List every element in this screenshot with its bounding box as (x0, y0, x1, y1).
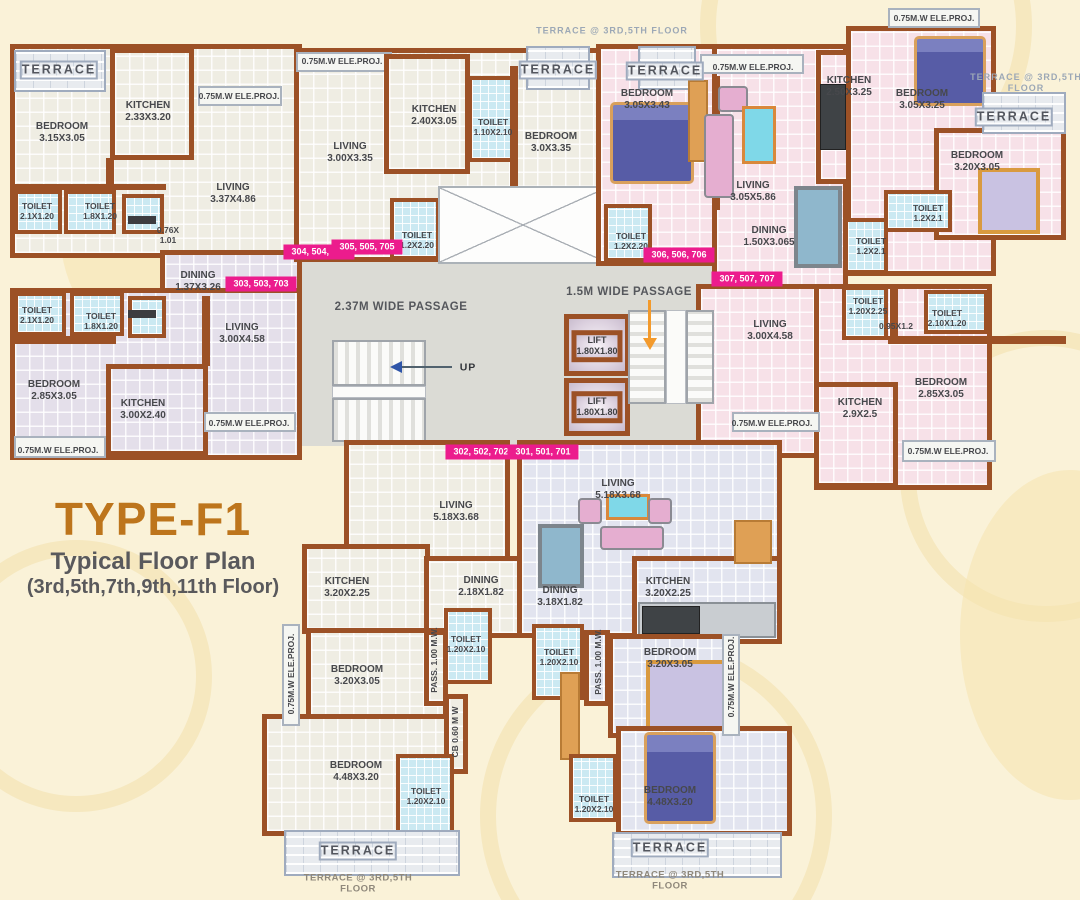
wall-303-a (12, 336, 116, 344)
room-label: TOILET1.8X1.20 (83, 201, 117, 221)
room-label: 0.75M.W ELE.PROJ. (286, 634, 296, 715)
room-label: BEDROOM2.85X3.05 (28, 379, 80, 403)
wardrobe-301 (560, 672, 580, 760)
table-301 (538, 524, 584, 588)
stairs-landing-1 (332, 386, 426, 398)
up-label: UP (460, 362, 477, 375)
floor-note: TERRACE @ 3RD,5THFLOOR (616, 870, 725, 893)
stove-301 (642, 606, 700, 634)
terrace-label: TERRACE (631, 839, 709, 858)
plan-subtitle: Typical Floor Plan (18, 548, 288, 576)
room-label: 0.75M.W ELE.PROJ. (732, 418, 813, 428)
room-label: 0.95X1.2 (879, 321, 913, 331)
room-label: 0.75M.W ELE.PROJ. (713, 62, 794, 72)
room-label: 0.75M.W ELE.PROJ. (726, 637, 736, 718)
stairs-dn-b (686, 310, 714, 404)
plan-floors-note: (3rd,5th,7th,9th,11th Floor) (18, 576, 288, 599)
table-306 (794, 186, 842, 268)
unit-badge: 301, 501, 701 (507, 445, 578, 460)
room-label: DINING3.18X1.82 (537, 585, 583, 609)
room-label: KITCHEN3.20X2.25 (324, 576, 370, 600)
lift-label: LIFT1.80X1.80 (571, 391, 622, 423)
bed-307-b (978, 168, 1040, 234)
terrace-label: TERRACE (626, 62, 704, 81)
room-label: LIVING5.18X3.68 (595, 478, 641, 502)
stairs-up-b (332, 398, 426, 442)
bed-306 (610, 102, 694, 184)
floor-note: TERRACE @ 3RD,5THFLOOR (970, 72, 1080, 94)
terrace-label: TERRACE (20, 61, 98, 80)
unit-badge: 307, 507, 707 (711, 272, 782, 287)
sofa-301 (600, 526, 664, 550)
room-label: BEDROOM3.20X3.05 (331, 664, 383, 688)
room-label: TOILET2.1X1.20 (20, 201, 54, 221)
terrace-label: TERRACE (319, 842, 397, 861)
chair-301-b (648, 498, 672, 524)
room-label: TOILET1.8X1.20 (84, 311, 118, 331)
room-label: LIVING3.05X5.86 (730, 180, 776, 204)
dim-smudge (128, 310, 156, 318)
room-label: BEDROOM3.0X3.35 (525, 131, 577, 155)
room-label: 0.76X1.01 (157, 225, 179, 245)
room-label: TOILET1.20X2.10 (447, 634, 486, 654)
room-label: TOILET1.10X2.10 (474, 117, 513, 137)
room-label: BEDROOM3.15X3.05 (36, 121, 88, 145)
room-label: DINING1.37X3.26 (175, 270, 221, 294)
lift-label: LIFT1.80X1.80 (571, 330, 622, 362)
room-label: PASS. 1.00 M.W. (429, 627, 439, 693)
room-label: BEDROOM2.85X3.05 (915, 377, 967, 401)
title-block: TYPE-F1 Typical Floor Plan (3rd,5th,7th,… (18, 492, 288, 599)
room-label: DINING1.50X3.065 (743, 225, 794, 249)
floor-note: TERRACE @ 3RD,5THFLOOR (304, 873, 413, 896)
passage-label: 1.5M WIDE PASSAGE (566, 286, 692, 300)
floor-plan: TERRACEBEDROOM3.15X3.05KITCHEN2.33X3.200… (0, 0, 1080, 900)
dim-smudge (128, 216, 156, 224)
room-label: TOILET1.2X2.1 (913, 203, 943, 223)
room-label: BEDROOM3.05X3.43 (621, 88, 673, 112)
passage-label: 2.37M WIDE PASSAGE (335, 301, 468, 315)
room-label: 0.75M.W ELE.PROJ. (302, 56, 383, 66)
room-label: TOILET2.10X1.20 (928, 308, 967, 328)
plan-type-title: TYPE-F1 (18, 492, 288, 546)
floor-note: TERRACE @ 3RD,5TH FLOOR (536, 26, 688, 37)
room-label: 0.75M.W ELE.PROJ. (199, 91, 280, 101)
room-label: BEDROOM3.20X3.05 (644, 647, 696, 671)
wall-303-b (202, 296, 210, 366)
room-label: DINING2.18X1.82 (458, 575, 504, 599)
room-label: BEDROOM4.48X3.20 (330, 760, 382, 784)
room-label: BEDROOM3.05X3.25 (896, 88, 948, 112)
unit-badge: 306, 506, 706 (643, 248, 714, 263)
room-label: TOILET1.20X2.10 (575, 794, 614, 814)
wall-307-a (888, 336, 1066, 344)
room-label: LIVING5.18X3.68 (433, 500, 479, 524)
stairs-up-arrow-icon (396, 366, 452, 368)
room-label: TOILET1.20X2.25 (849, 296, 888, 316)
room-label: LIVING3.00X4.58 (747, 319, 793, 343)
wall-307-b (890, 286, 898, 340)
room-label: TOILET1.2X2.1 (856, 236, 886, 256)
room-label: KITCHEN2.33X3.20 (125, 100, 171, 124)
room-label: BEDROOM3.20X3.05 (951, 150, 1003, 174)
tv-306 (742, 106, 776, 164)
void-shaft (438, 186, 608, 264)
room-label: LIVING3.00X3.35 (327, 141, 373, 165)
room-label: KITCHEN2.50X3.25 (826, 75, 872, 99)
room-label: TOILET1.2X2.20 (400, 230, 434, 250)
room-label: KITCHEN2.9X2.5 (838, 397, 882, 421)
stairs-down-arrow-icon (648, 300, 651, 346)
unit-badge: 303, 503, 703 (225, 277, 296, 292)
stairs-up-a (332, 340, 426, 386)
unit-badge: 302, 502, 702 (445, 445, 516, 460)
room-label: TOILET1.20X2.10 (407, 786, 446, 806)
room-label: LIVING3.37X4.86 (210, 182, 256, 206)
bed-301-b (644, 732, 716, 824)
room-label: KITCHEN2.40X3.05 (411, 104, 457, 128)
room-label: 0.75M.W ELE.PROJ. (18, 445, 99, 455)
room-label: TOILET1.20X2.10 (540, 647, 579, 667)
stairs-landing-2 (666, 310, 686, 404)
room-label: TOILET2.1X1.20 (20, 305, 54, 325)
terrace-label: TERRACE (975, 108, 1053, 127)
room-label: 0.75M.W ELE.PROJ. (894, 13, 975, 23)
room-label: KITCHEN3.00X2.40 (120, 398, 166, 422)
room-label: 0.75M.W ELE.PROJ. (908, 446, 989, 456)
wall-304-b (12, 184, 166, 190)
room-label: CB 0.60 M W (450, 706, 460, 757)
terrace-label: TERRACE (519, 61, 597, 80)
room-label: PASS. 1.00 M.W. (593, 629, 603, 695)
room-label: KITCHEN3.20X2.25 (645, 576, 691, 600)
room-label: BEDROOM4.48X3.20 (644, 785, 696, 809)
room-label: LIVING3.00X4.58 (219, 322, 265, 346)
unit-badge: 305, 505, 705 (331, 240, 402, 255)
room-label: 0.75M.W ELE.PROJ. (209, 418, 290, 428)
stairs-dn-a (628, 310, 666, 404)
rug-301 (734, 520, 772, 564)
